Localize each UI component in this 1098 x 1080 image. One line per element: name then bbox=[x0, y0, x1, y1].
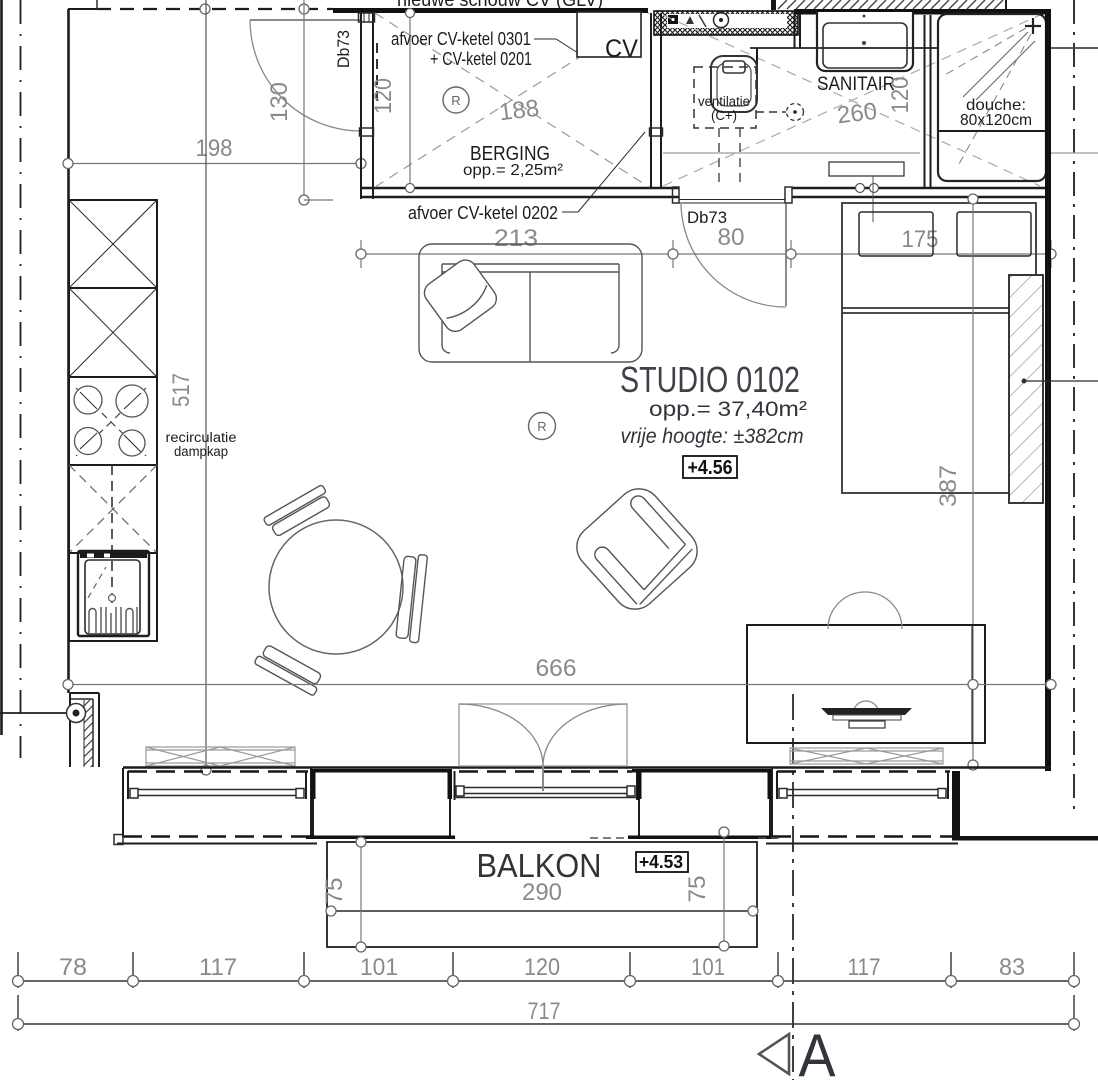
svg-text:opp.= 2,25m²: opp.= 2,25m² bbox=[463, 162, 564, 179]
svg-text:517: 517 bbox=[168, 373, 195, 407]
svg-text:101: 101 bbox=[360, 954, 398, 981]
svg-text:260: 260 bbox=[836, 98, 879, 130]
svg-text:recirculatie: recirculatie bbox=[166, 430, 237, 445]
svg-text:(C+): (C+) bbox=[711, 108, 737, 123]
svg-text:387: 387 bbox=[935, 465, 962, 507]
svg-text:dampkap: dampkap bbox=[174, 444, 228, 459]
svg-text:A: A bbox=[799, 1022, 836, 1080]
svg-text:188: 188 bbox=[498, 95, 541, 127]
svg-text:+4.53: +4.53 bbox=[639, 852, 683, 872]
svg-text:R: R bbox=[451, 93, 460, 108]
svg-text:75: 75 bbox=[321, 878, 348, 905]
svg-text:afvoer CV-ketel 0301: afvoer CV-ketel 0301 bbox=[391, 29, 531, 49]
svg-text:SANITAIR: SANITAIR bbox=[817, 74, 895, 95]
svg-text:117: 117 bbox=[848, 954, 881, 981]
svg-text:717: 717 bbox=[528, 998, 561, 1025]
svg-text:R: R bbox=[537, 419, 546, 434]
svg-text:120: 120 bbox=[524, 954, 560, 981]
svg-text:666: 666 bbox=[536, 655, 577, 682]
svg-text:ventilatie: ventilatie bbox=[698, 94, 750, 109]
svg-text:75: 75 bbox=[684, 876, 711, 903]
svg-text:198: 198 bbox=[196, 135, 233, 162]
svg-text:117: 117 bbox=[199, 954, 237, 981]
svg-text:STUDIO 0102: STUDIO 0102 bbox=[620, 359, 800, 400]
svg-text:Db73: Db73 bbox=[334, 30, 353, 68]
svg-text:vrije hoogte: ±382cm: vrije hoogte: ±382cm bbox=[621, 425, 804, 448]
svg-text:afvoer CV-ketel 0202: afvoer CV-ketel 0202 bbox=[408, 203, 558, 223]
svg-text:120: 120 bbox=[887, 77, 914, 114]
svg-text:83: 83 bbox=[999, 954, 1025, 981]
svg-text:213: 213 bbox=[494, 225, 538, 252]
svg-text:290: 290 bbox=[522, 879, 562, 906]
svg-text:80x120cm: 80x120cm bbox=[960, 112, 1032, 129]
svg-text:130: 130 bbox=[266, 82, 293, 122]
svg-text:CV: CV bbox=[605, 35, 638, 63]
svg-text:80: 80 bbox=[718, 224, 745, 251]
svg-text:120: 120 bbox=[370, 78, 397, 114]
svg-text:+4.56: +4.56 bbox=[688, 457, 733, 479]
svg-text:78: 78 bbox=[59, 954, 87, 981]
svg-text:101: 101 bbox=[691, 954, 725, 981]
svg-text:opp.= 37,40m²: opp.= 37,40m² bbox=[649, 398, 807, 421]
svg-text:+ CV-ketel 0201: + CV-ketel 0201 bbox=[430, 49, 532, 69]
